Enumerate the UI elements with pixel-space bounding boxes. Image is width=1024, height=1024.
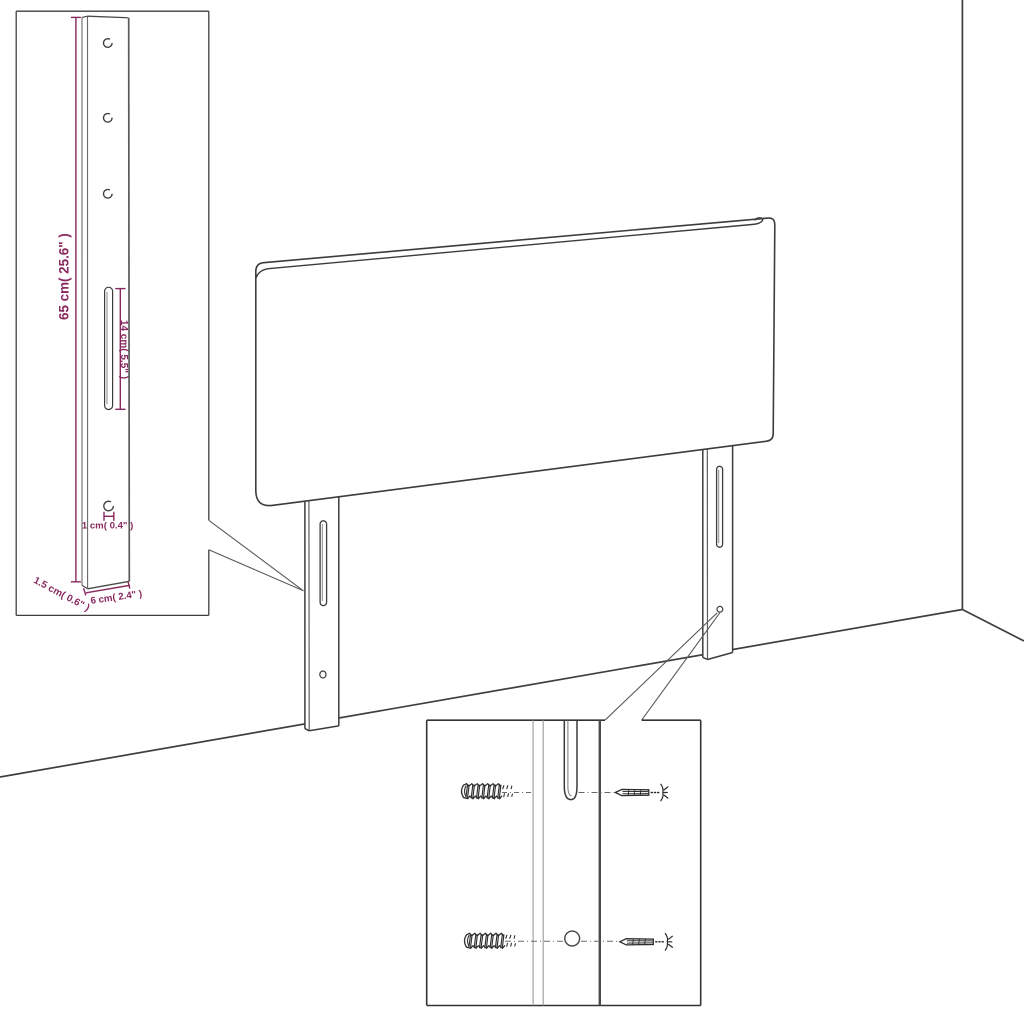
svg-text:1 cm( 0.4" ): 1 cm( 0.4" ) [82,520,133,531]
svg-text:14 cm( 5.5" ): 14 cm( 5.5" ) [118,320,129,379]
svg-text:65 cm( 25.6" ): 65 cm( 25.6" ) [56,233,71,320]
